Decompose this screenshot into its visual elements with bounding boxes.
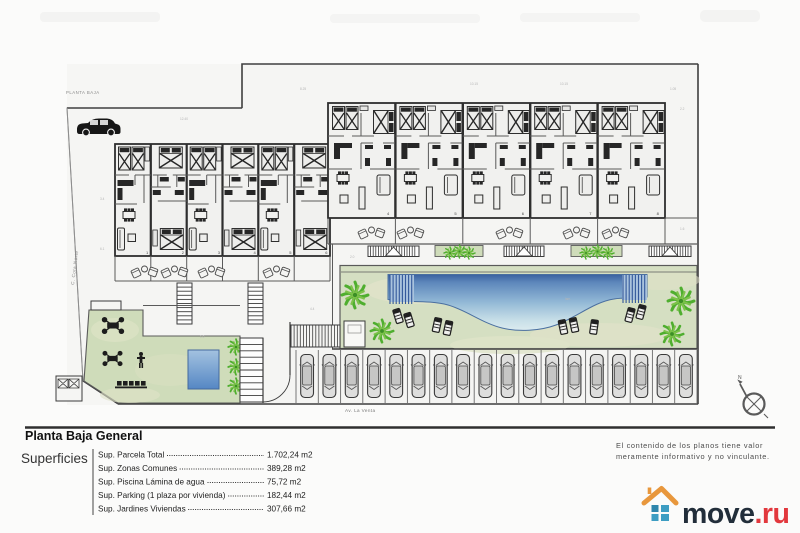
svg-text:N: N <box>738 375 742 381</box>
svg-text:Planta Baja General: Planta Baja General <box>25 429 142 443</box>
svg-text:5.0: 5.0 <box>620 395 625 399</box>
svg-text:10.15: 10.15 <box>470 82 478 86</box>
svg-text:Sup. Zonas Comunes: Sup. Zonas Comunes <box>98 464 177 473</box>
svg-text:12.40: 12.40 <box>180 117 188 121</box>
svg-text:4.4: 4.4 <box>310 307 315 311</box>
svg-text:El contenido de los planos tie: El contenido de los planos tiene valor <box>616 441 763 450</box>
svg-text:10.15: 10.15 <box>560 82 568 86</box>
svg-text:move.ru: move.ru <box>682 498 789 530</box>
svg-text:75,72 m2: 75,72 m2 <box>267 478 302 487</box>
svg-text:307,66 m2: 307,66 m2 <box>267 505 306 514</box>
svg-text:Sup. Parcela Total: Sup. Parcela Total <box>98 451 164 460</box>
svg-text:3.4: 3.4 <box>100 197 105 201</box>
svg-text:1.6: 1.6 <box>680 227 685 231</box>
svg-text:182,44 m2: 182,44 m2 <box>267 491 306 500</box>
svg-text:1.702,24 m2: 1.702,24 m2 <box>267 451 313 460</box>
svg-text:Sup. Jardines Viviendas: Sup. Jardines Viviendas <box>98 505 186 514</box>
svg-text:1.9: 1.9 <box>200 335 205 339</box>
svg-text:meramente informativo y no vin: meramente informativo y no vinculante. <box>616 452 770 461</box>
svg-text:1.05: 1.05 <box>670 87 676 91</box>
svg-text:Superficies: Superficies <box>21 451 88 466</box>
svg-text:8.25: 8.25 <box>300 87 306 91</box>
svg-text:6.1: 6.1 <box>100 247 105 251</box>
svg-text:Sup. Piscina Lámina de agua: Sup. Piscina Lámina de agua <box>98 478 205 487</box>
svg-text:Av. La Venta: Av. La Venta <box>345 408 375 413</box>
svg-text:389,28 m2: 389,28 m2 <box>267 464 306 473</box>
svg-text:lam.: lam. <box>565 297 571 301</box>
svg-text:PLANTA BAJA: PLANTA BAJA <box>66 90 100 95</box>
svg-text:2.0: 2.0 <box>350 255 355 259</box>
svg-text:2.2: 2.2 <box>680 107 685 111</box>
svg-text:Sup. Parking (1 plaza por vivi: Sup. Parking (1 plaza por vivienda) <box>98 491 226 500</box>
